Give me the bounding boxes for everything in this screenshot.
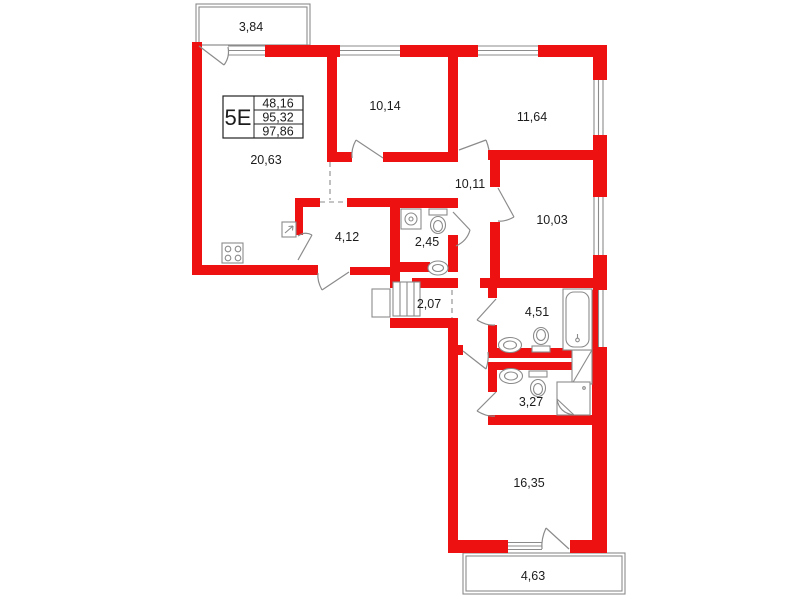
- room-16-35-door-swing-icon: [463, 351, 488, 369]
- entrance-door-icon: [372, 289, 390, 317]
- room-10-14-door-swing-icon: [352, 140, 383, 158]
- room-11-64-door-swing-icon: [459, 140, 489, 150]
- unit-area-living: 95,32: [262, 111, 293, 125]
- room-label-10-14: 10,14: [369, 99, 400, 113]
- window-bottom-room: [506, 543, 542, 550]
- vent-shaft: [572, 350, 592, 384]
- room-label-hall-2-07: 2,07: [417, 297, 441, 311]
- sink-icon: [428, 261, 448, 275]
- room-label-hallway: 10,11: [455, 177, 485, 191]
- bathtub-icon: [563, 289, 592, 350]
- room-label-16-35: 16,35: [513, 476, 544, 490]
- room-label-living-kitchen: 20,63: [250, 153, 281, 167]
- electric-panel-icon: [282, 222, 296, 237]
- washing-machine-icon: [401, 209, 421, 229]
- living-room-door-swing-icon: [318, 272, 349, 290]
- room-label-bath-3-27: 3,27: [519, 395, 543, 409]
- shower-icon: [557, 382, 590, 415]
- room-label-wc-2-45: 2,45: [415, 235, 439, 249]
- unit-label: 5Е: [225, 105, 252, 130]
- stove-icon: [222, 243, 243, 263]
- room-label-closet: 4,12: [335, 230, 359, 244]
- floor-plan: 5Е 48,16 95,32 97,86 3,84 20,63 10,14 11…: [0, 0, 800, 600]
- balcony-door-swing-icon: [199, 46, 229, 65]
- toilet-icon: [529, 371, 547, 397]
- sink-icon: [499, 338, 522, 353]
- sink-icon: [500, 369, 523, 384]
- room-label-balcony-top: 3,84: [239, 20, 263, 34]
- toilet-icon: [532, 328, 550, 353]
- unit-info-table: 5Е 48,16 95,32 97,86: [223, 96, 303, 139]
- room-10-03-door-swing-icon: [498, 188, 514, 221]
- balcony-bottom-door-swing-icon: [542, 528, 569, 549]
- bathroom-3-27-door-swing-icon: [477, 392, 496, 416]
- room-label-10-03: 10,03: [536, 213, 567, 227]
- unit-area-overall: 97,86: [262, 125, 293, 139]
- bathroom-4-51-door-swing-icon: [477, 299, 496, 325]
- closet-door-swing-icon: [298, 233, 312, 260]
- room-label-bath-4-51: 4,51: [525, 305, 549, 319]
- room-label-balcony-bottom: 4,63: [521, 569, 545, 583]
- unit-area-total: 48,16: [262, 97, 293, 111]
- toilet-icon: [429, 209, 447, 234]
- room-label-11-64: 11,64: [517, 110, 547, 124]
